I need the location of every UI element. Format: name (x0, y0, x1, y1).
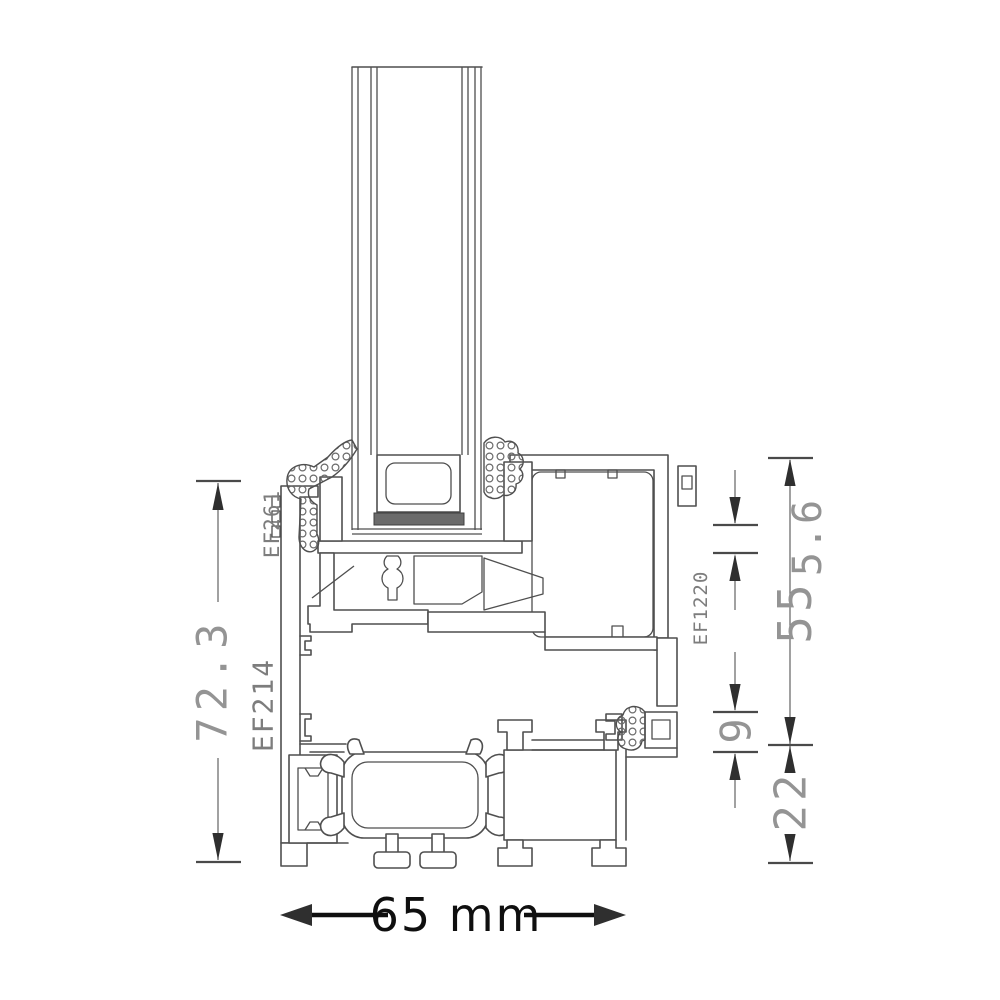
dim-arrow-down (784, 717, 795, 744)
dim-top-offset: 5.6 (785, 498, 831, 576)
frame-right-chamber (504, 750, 616, 840)
sash-left-leg (320, 477, 342, 541)
rebate-gasket (616, 707, 645, 750)
dim-overall-width: 65 mm (370, 888, 543, 942)
sash-top-right-band (510, 455, 668, 638)
sash-underside-right (545, 637, 657, 650)
sash-wall-notch (556, 470, 565, 478)
dim-arrow-down (784, 834, 795, 861)
sash-hardware-lip (678, 466, 696, 506)
sash-chamber-notch (612, 626, 623, 637)
dim-rebate-gap: 9 (712, 718, 761, 743)
dim-arrow-up (784, 746, 795, 773)
frame-t-foot-stem (386, 834, 398, 854)
frame-gasket-holder (645, 712, 677, 748)
frame-corner-tab (498, 720, 532, 750)
sash-wall-notch (608, 470, 617, 478)
dim-base-height: 22 (766, 771, 817, 832)
screw-port (382, 556, 403, 600)
drawing-canvas: 72.3 9 5.6 55 22 65 mm (0, 0, 1000, 1000)
frame-t-foot (374, 852, 410, 868)
dim-arrow-up (729, 554, 740, 581)
label-sash-profile: EF1220 (690, 571, 712, 646)
dim-arrow-up (729, 753, 740, 780)
frame-t-foot (498, 840, 532, 866)
dim-arrow-down (729, 497, 740, 524)
label-frame-profile: EF214 (247, 658, 280, 752)
glazing-pocket-floor (318, 541, 522, 553)
thermal-clip (348, 739, 364, 754)
thermal-break-chamber (342, 752, 488, 838)
glazing-seal (374, 513, 464, 525)
frame-t-foot-stem (432, 834, 444, 854)
sash-underside-left (308, 553, 428, 632)
width-arrow-right (594, 904, 626, 926)
width-arrow-left (280, 904, 312, 926)
dim-arrow-up (784, 459, 795, 486)
frame-hook (300, 714, 311, 741)
sash-chamber (532, 472, 653, 637)
glazing-unit (352, 67, 482, 534)
sash-underside-mid (428, 612, 545, 632)
frame-foot (281, 843, 307, 866)
sash-dovetail-funnel (484, 558, 543, 610)
dim-sash-height: 55 (768, 580, 822, 643)
dim-arrow-down (729, 684, 740, 711)
label-outer-gasket: EF261 (260, 490, 284, 558)
thermal-clip (466, 739, 482, 754)
dim-overall-height: 72.3 (188, 617, 237, 742)
frame-t-foot (420, 852, 456, 868)
frame-t-foot (592, 840, 626, 866)
dim-arrow-down (212, 833, 223, 860)
window-profile-cross-section: 72.3 9 5.6 55 22 65 mm (0, 0, 1000, 1000)
frame-hook (300, 636, 311, 655)
sash-small-chamber (414, 556, 482, 604)
dim-arrow-up (212, 483, 223, 510)
